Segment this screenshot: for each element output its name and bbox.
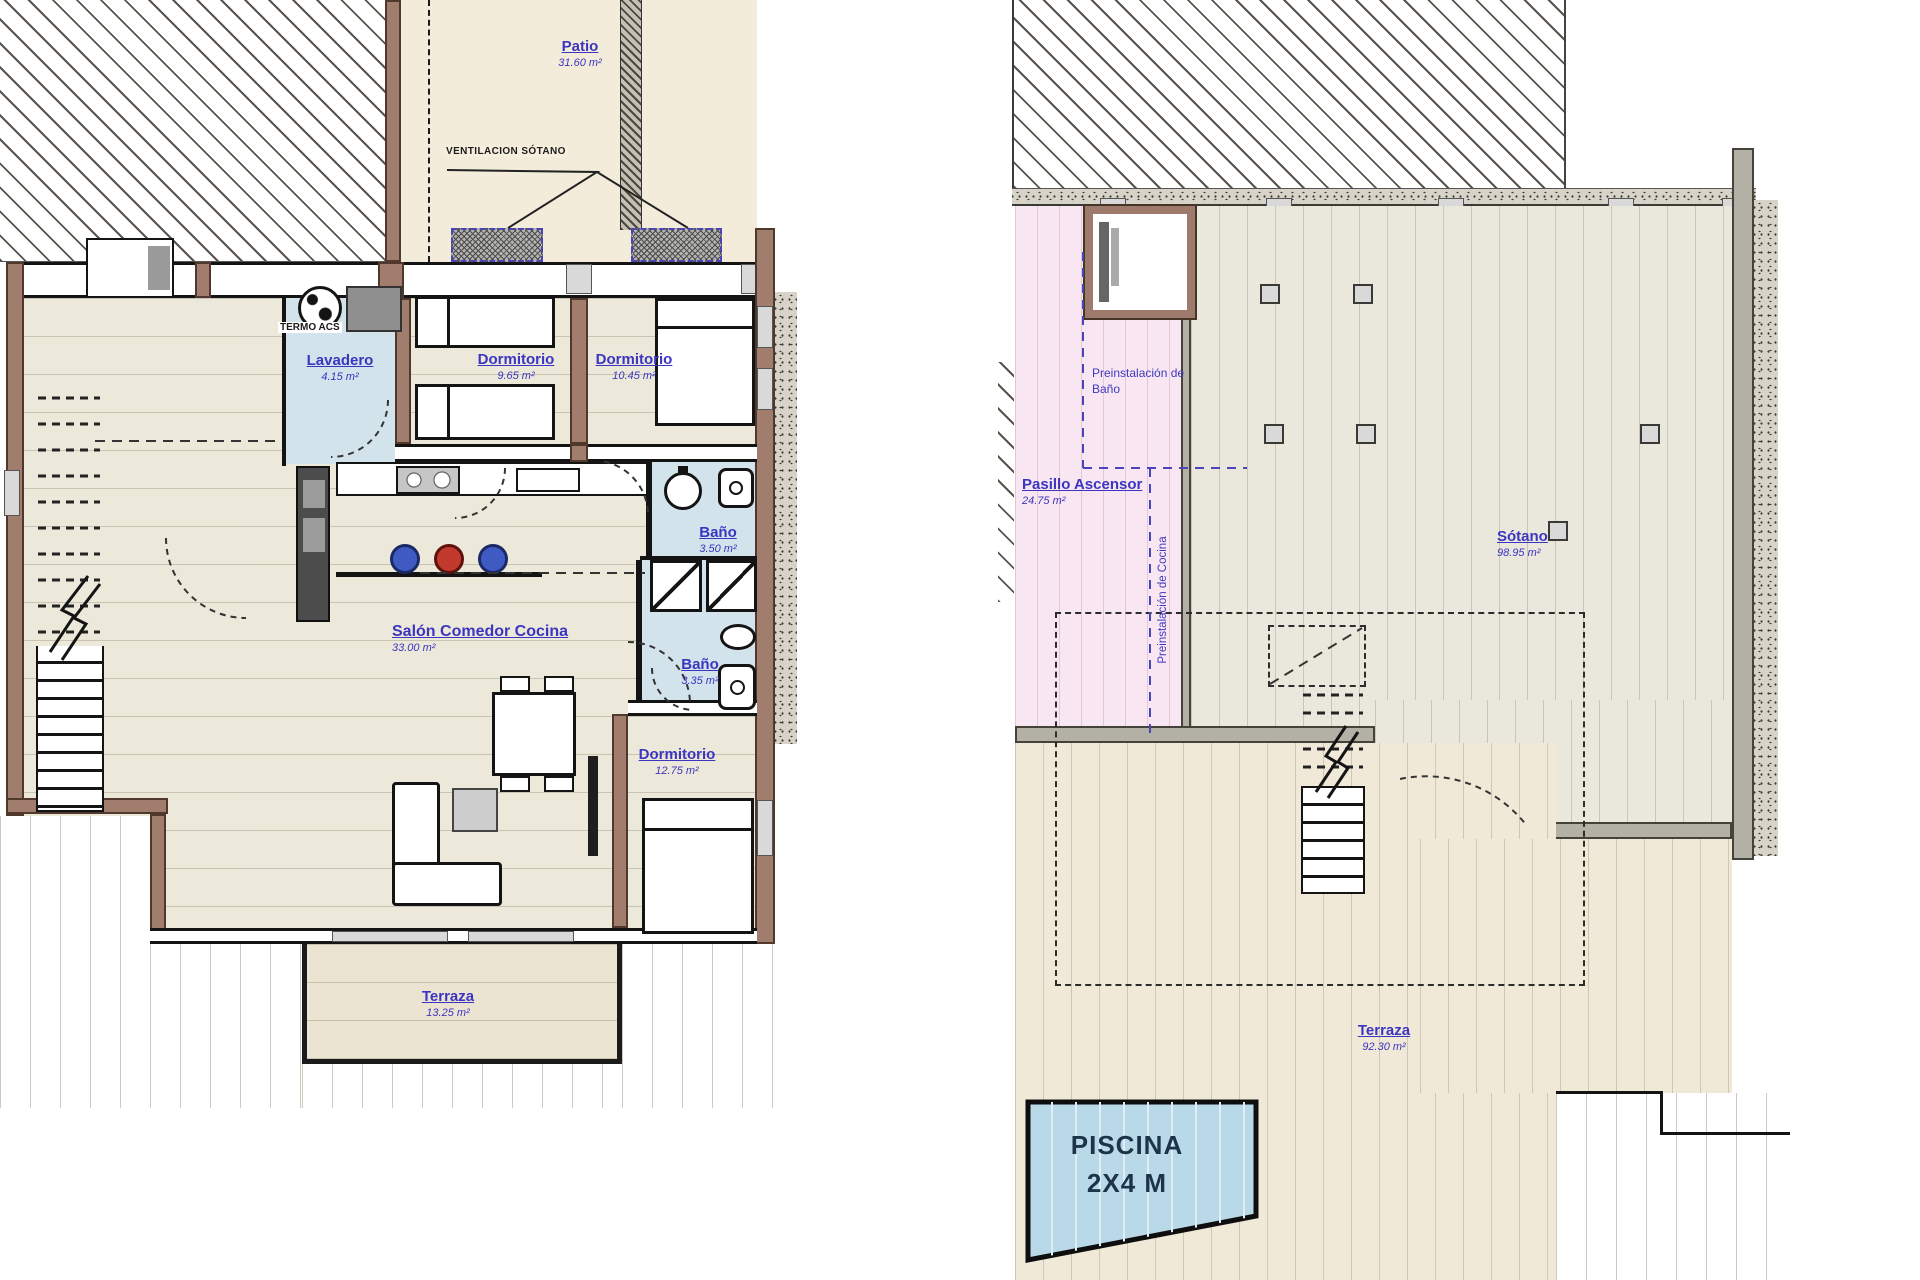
room-area: 10.45 m²: [584, 370, 684, 384]
kitchen-tall-unit: [296, 466, 330, 622]
wall: [612, 714, 628, 928]
pillow: [645, 801, 751, 831]
room-label-salon: Salón Comedor Cocina 33.00 m²: [392, 622, 592, 656]
wall: [6, 262, 24, 816]
shower-panel: [650, 560, 702, 612]
sliding-door: [468, 931, 574, 942]
tv-unit: [588, 756, 598, 856]
room-label-dormitorio2: Dormitorio 10.45 m²: [584, 351, 684, 384]
bar-stool: [434, 544, 464, 574]
room-label-bano1: Baño 3.50 m²: [668, 524, 768, 557]
party-wall-strip: [620, 0, 642, 230]
room-label-terraza-right: Terraza 92.30 m²: [1334, 1022, 1434, 1055]
column: [1353, 284, 1373, 304]
pillow: [658, 301, 752, 329]
party-wall-texture: [1754, 200, 1778, 856]
chair: [500, 676, 530, 692]
room-name: Pasillo Ascensor: [1022, 476, 1152, 495]
appliance: [303, 518, 325, 552]
washbasin-icon: [720, 624, 756, 650]
bed: [642, 798, 754, 934]
room-name: Terraza: [398, 988, 498, 1007]
wall-pillar: [566, 264, 592, 294]
column: [1356, 424, 1376, 444]
patio-boundary-dashed: [428, 0, 430, 262]
stairs: [36, 646, 104, 812]
elevator-rail: [1099, 222, 1109, 302]
room-area: 3.50 m²: [668, 543, 768, 557]
window: [4, 470, 20, 516]
plot-edge: [1564, 0, 1566, 188]
room-name: Lavadero: [290, 352, 390, 371]
stove-icon: [396, 466, 460, 494]
water-heater: [346, 286, 402, 332]
room-area: 13.25 m²: [398, 1007, 498, 1021]
kitchen-island-counter: [336, 572, 542, 577]
neighbor-hatch-strip: [998, 362, 1014, 602]
room-area: 33.00 m²: [392, 642, 592, 656]
room-label-bano2: Baño 3.35 m²: [650, 656, 750, 689]
basement-vent-grille: [451, 228, 543, 262]
room-name: Sótano: [1497, 528, 1597, 547]
side-table: [452, 788, 498, 832]
basement-vent-grille: [631, 228, 722, 262]
washbasin-icon: [664, 472, 702, 510]
wall: [385, 0, 401, 262]
column: [1260, 284, 1280, 304]
stairs: [1301, 786, 1365, 894]
wall: [636, 560, 642, 716]
pool-label-line2: 2X4 M: [1032, 1168, 1222, 1199]
boundary-line: [1556, 1091, 1662, 1094]
boundary-line: [1660, 1132, 1790, 1135]
window: [757, 368, 773, 410]
column: [1264, 424, 1284, 444]
room-label-lavadero: Lavadero 4.15 m²: [290, 352, 390, 385]
elevator-rail: [1111, 228, 1119, 286]
room-area: 24.75 m²: [1022, 495, 1152, 509]
room-label-patio: Patio 31.60 m²: [534, 38, 626, 71]
wall: [570, 444, 588, 462]
floorplan-sheet: Patio 31.60 m² VENTILACION SÓTANO TERMO …: [0, 0, 1920, 1280]
pool-label-line1: PISCINA: [1032, 1130, 1222, 1161]
room-label-dormitorio1: Dormitorio 9.65 m²: [466, 351, 566, 384]
vent-label: VENTILACION SÓTANO: [444, 146, 568, 157]
bed: [415, 296, 555, 348]
shower-panel: [706, 560, 757, 612]
room-area: 92.30 m²: [1334, 1041, 1434, 1055]
room-name: Dormitorio: [466, 351, 566, 370]
party-wall-texture: [775, 292, 797, 744]
room-area: 31.60 m²: [534, 57, 626, 71]
chair: [500, 776, 530, 792]
toilet-icon: [718, 468, 754, 508]
room-name: Patio: [534, 38, 626, 57]
kitchen-sink: [516, 468, 580, 492]
termo-label: TERMO ACS: [278, 322, 342, 333]
appliance: [303, 480, 325, 508]
deck: [622, 944, 794, 1108]
deck: [150, 944, 302, 1108]
column: [1640, 424, 1660, 444]
elevator-shaft: [1085, 206, 1195, 318]
bar-stool: [390, 544, 420, 574]
room-area: 98.95 m²: [1497, 547, 1597, 561]
room-area: 12.75 m²: [627, 765, 727, 779]
neighbor-hatch-area: [1012, 0, 1564, 188]
preinstall-kitchen-label: Preinstalación de Cocina: [1157, 536, 1169, 663]
sliding-door: [332, 931, 448, 942]
room-name: Salón Comedor Cocina: [392, 622, 592, 642]
room-label-pasillo: Pasillo Ascensor 24.75 m²: [1022, 476, 1152, 509]
pillow: [418, 299, 450, 345]
chair: [544, 776, 574, 792]
preinstall-bath-label: Preinstalación de Baño: [1092, 366, 1192, 397]
cabinet-top: [148, 246, 170, 290]
sofa: [392, 862, 502, 906]
room-name: Baño: [668, 524, 768, 543]
wall: [1732, 148, 1754, 860]
room-name: Dormitorio: [584, 351, 684, 370]
room-name: Dormitorio: [627, 746, 727, 765]
chair: [544, 676, 574, 692]
room-label-dormitorio3: Dormitorio 12.75 m²: [627, 746, 727, 779]
wall: [150, 814, 166, 936]
boundary-line: [1660, 1091, 1663, 1135]
window: [757, 306, 773, 348]
stair-projection: [1268, 625, 1366, 687]
kitchen-counter: [336, 462, 648, 496]
room-area: 3.35 m²: [650, 675, 750, 689]
deck: [302, 1064, 622, 1108]
tap-icon: [678, 466, 688, 474]
pillow: [418, 387, 450, 437]
deck: [0, 816, 150, 1108]
room-name: Baño: [650, 656, 750, 675]
deck: [1556, 1093, 1790, 1280]
window: [757, 800, 773, 856]
room-label-terraza-left: Terraza 13.25 m²: [398, 988, 498, 1021]
wall: [195, 262, 211, 298]
bar-stool: [478, 544, 508, 574]
room-area: 9.65 m²: [466, 370, 566, 384]
dining-table: [492, 692, 576, 776]
cabinet: [86, 238, 174, 298]
room-name: Terraza: [1334, 1022, 1434, 1041]
bed: [415, 384, 555, 440]
neighbor-hatch-area: [0, 0, 385, 262]
toilet-bowl: [729, 481, 743, 495]
room-label-sotano: Sótano 98.95 m²: [1497, 528, 1597, 561]
room-area: 4.15 m²: [290, 371, 390, 385]
